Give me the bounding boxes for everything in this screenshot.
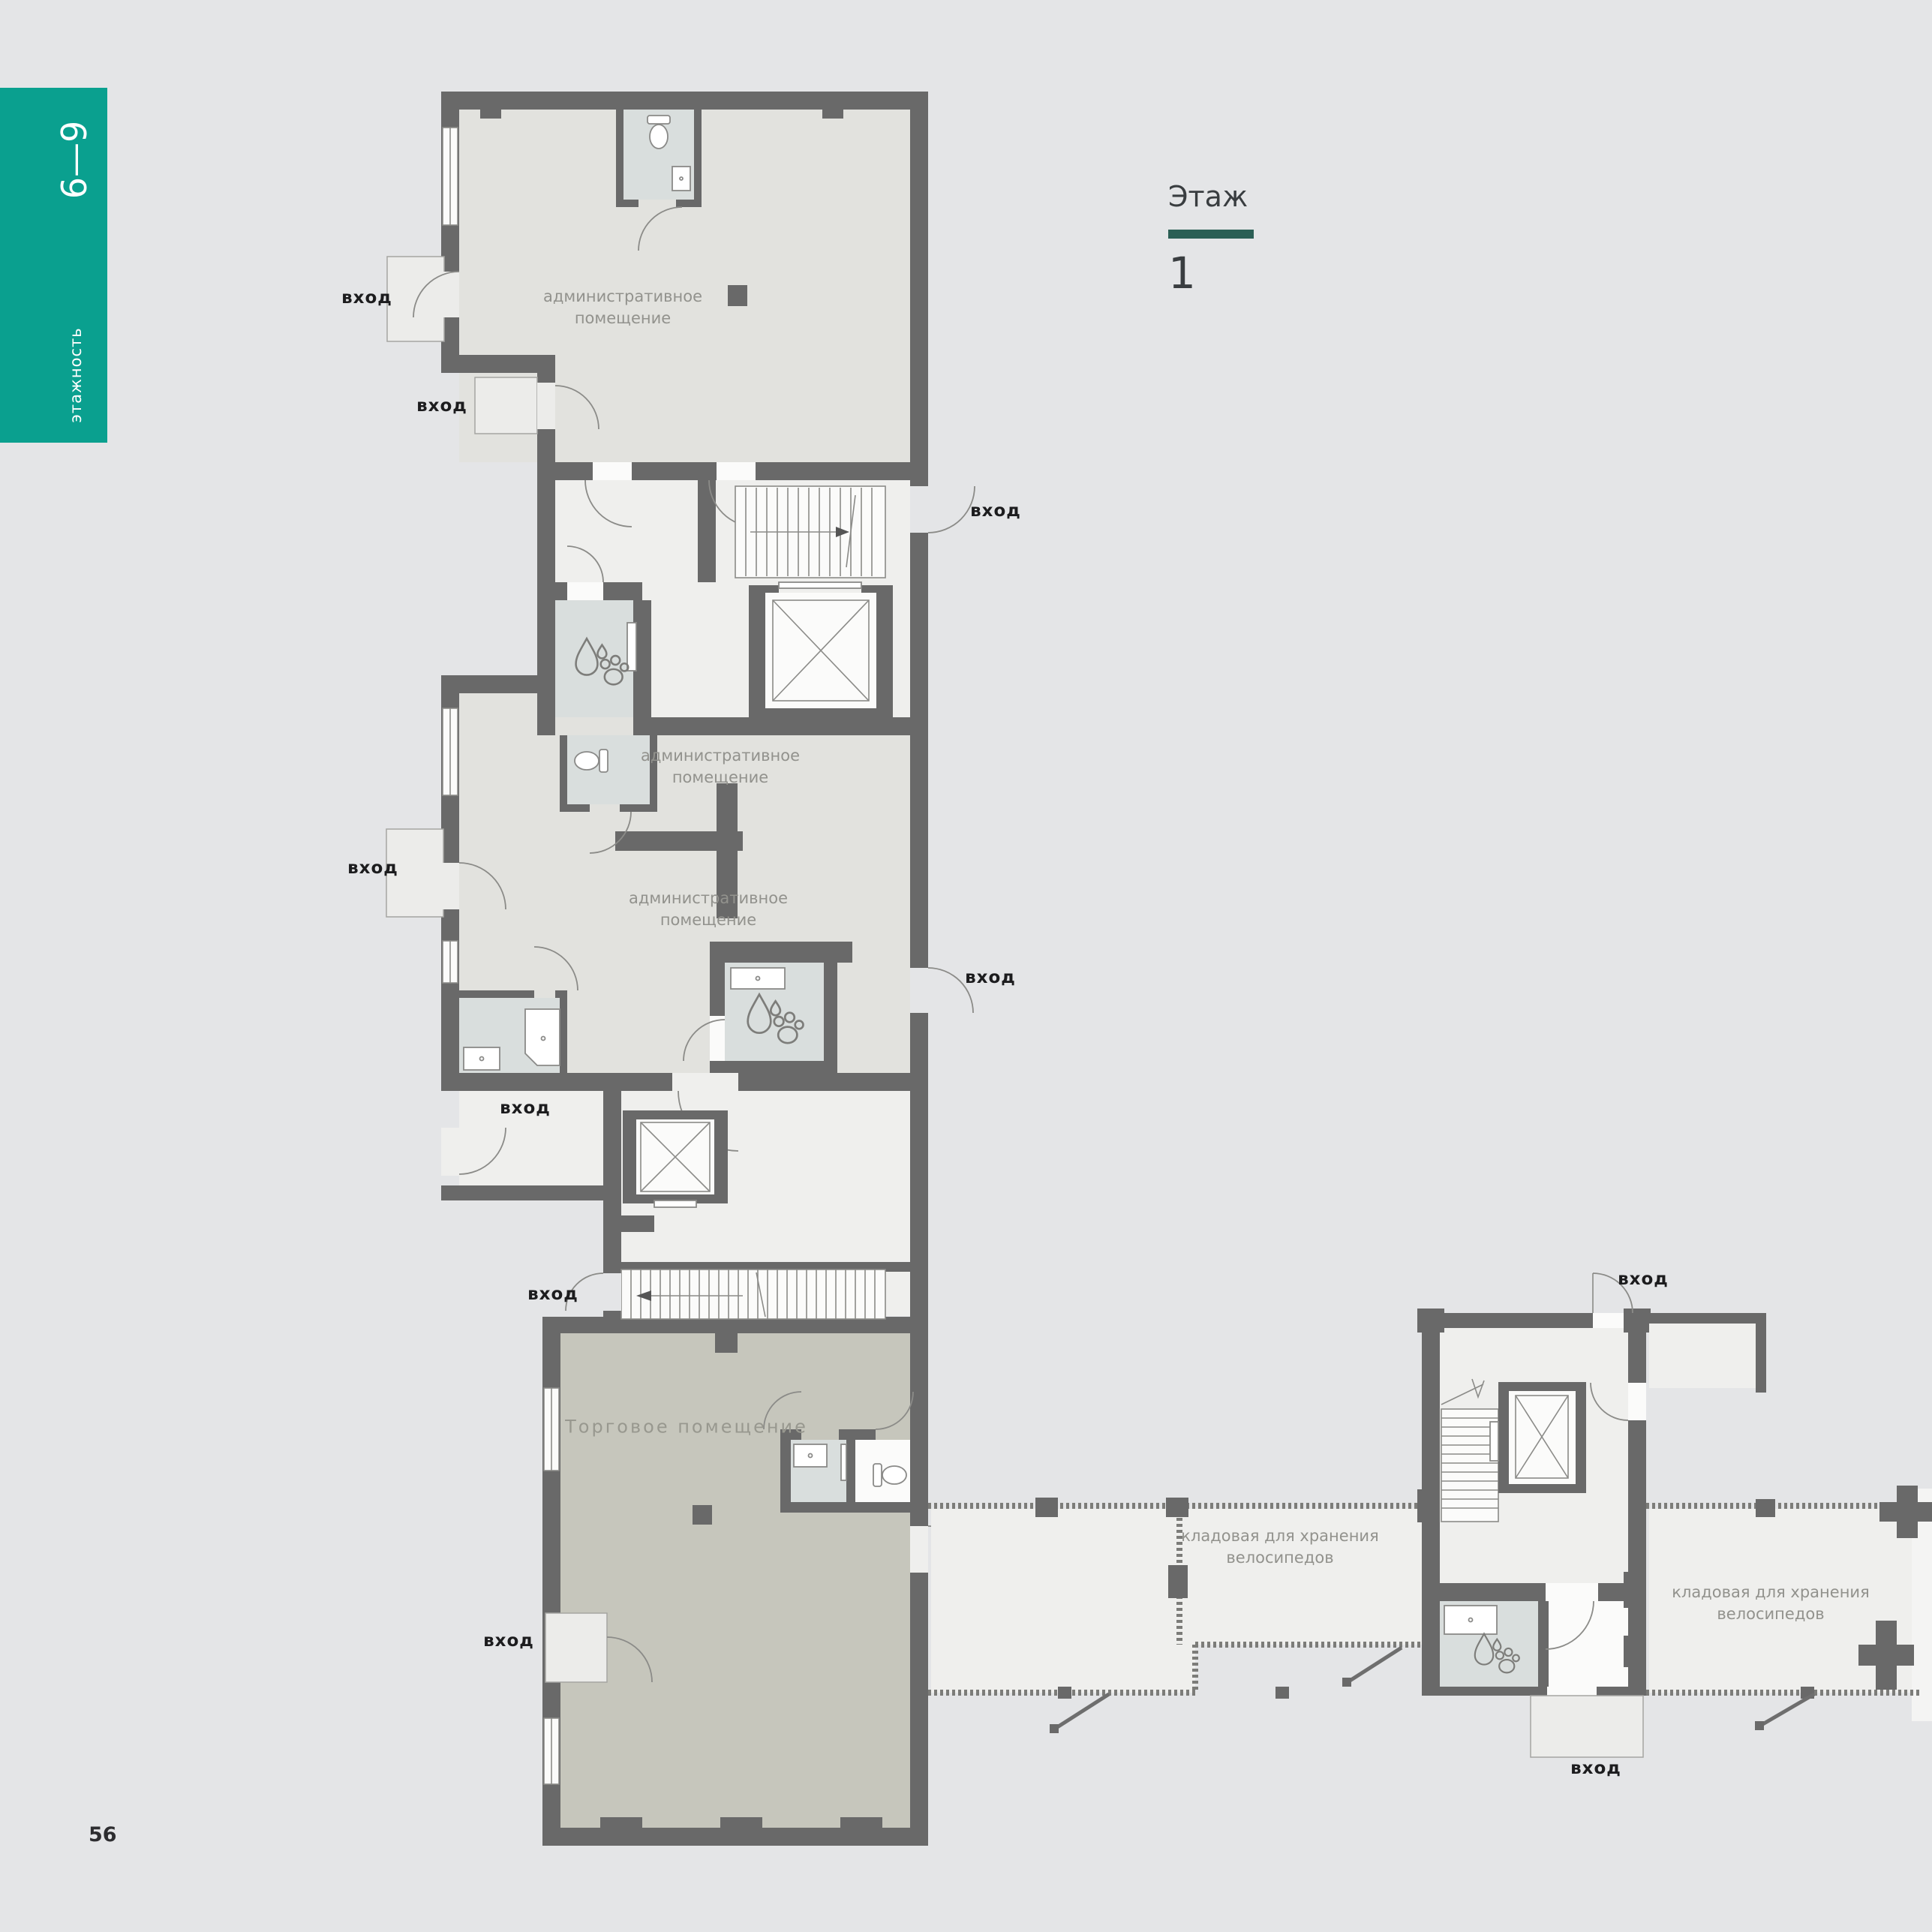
entrance-label: вход bbox=[416, 396, 467, 416]
building-left bbox=[386, 92, 975, 1846]
toilet-icon bbox=[575, 750, 608, 772]
entrance-label: вход bbox=[965, 968, 1016, 987]
entrance-label: вход bbox=[483, 1631, 534, 1651]
elevator-upper bbox=[749, 582, 893, 717]
entrance-label: вход bbox=[500, 1098, 551, 1118]
room-label-admin-middle-upper: административное помещение bbox=[608, 745, 833, 789]
room-label-bike-storage-right: кладовая для хранения велосипедов bbox=[1647, 1582, 1894, 1625]
room-label-admin-middle-lower: административное помещение bbox=[596, 888, 821, 931]
room-label-retail: Торговое помещение bbox=[565, 1414, 808, 1439]
building-right bbox=[928, 1273, 1932, 1757]
toilet-icon bbox=[873, 1464, 906, 1486]
entrance-label: вход bbox=[341, 288, 392, 308]
toilet-icon bbox=[648, 116, 670, 149]
floor-plan bbox=[0, 0, 1932, 1932]
room-label-admin-top: административное помещение bbox=[510, 286, 735, 329]
elevator-lower bbox=[623, 1110, 728, 1207]
entrance-label: вход bbox=[1570, 1759, 1621, 1778]
brochure-page: 6—9 этажность Этаж 1 56 bbox=[0, 0, 1932, 1932]
stairs-lower bbox=[621, 1269, 885, 1319]
entrance-label: вход bbox=[1618, 1269, 1669, 1289]
entrance-label: вход bbox=[527, 1284, 578, 1304]
room-label-bike-storage-left: кладовая для хранения велосипедов bbox=[1156, 1525, 1404, 1569]
entrance-label: вход bbox=[970, 501, 1021, 521]
entrance-label: вход bbox=[347, 858, 398, 878]
stairs-upper bbox=[735, 486, 885, 578]
elevator-core bbox=[1490, 1382, 1586, 1493]
